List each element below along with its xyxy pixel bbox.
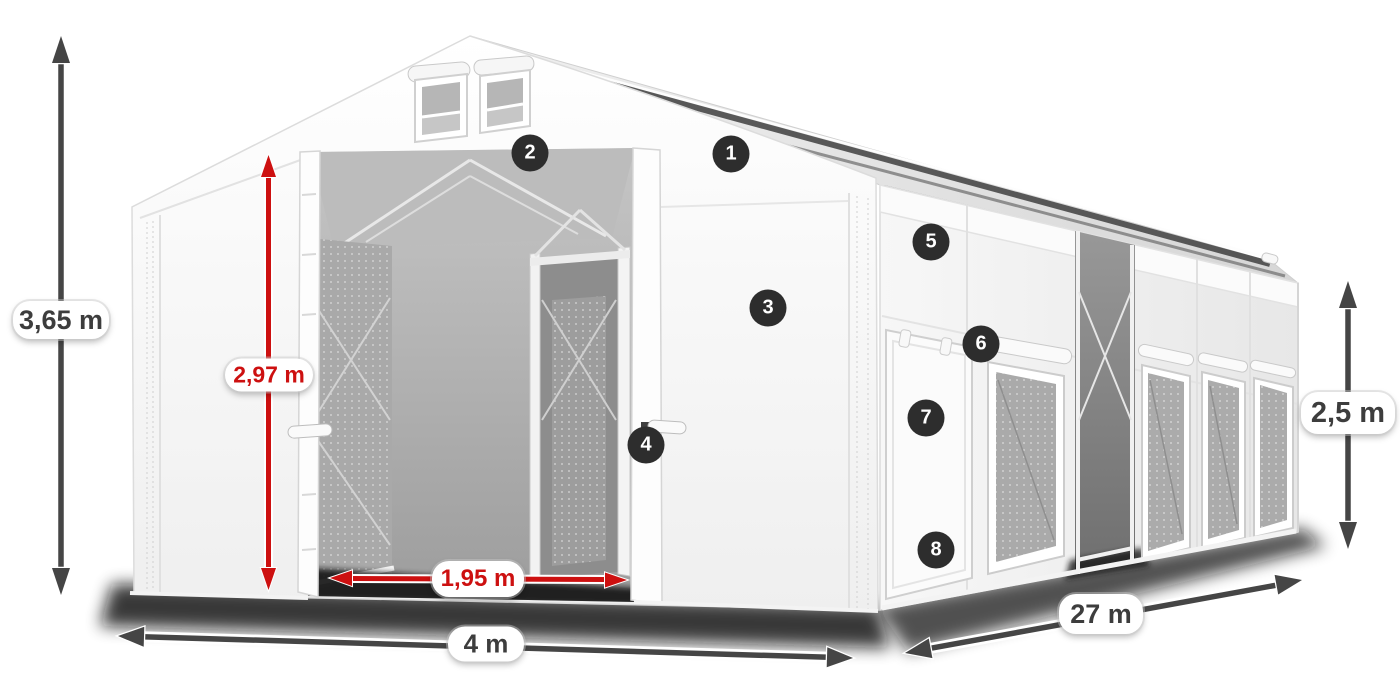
dimension-label-total-height: 3,65 m xyxy=(13,301,109,339)
side-window-4 xyxy=(1249,359,1296,537)
side-window-2 xyxy=(1137,343,1194,560)
door-handle-left xyxy=(288,423,333,438)
entrance-right-column xyxy=(631,148,662,604)
dimension-label-width: 4 m xyxy=(448,627,524,662)
product-dimension-diagram: 3,65 m 2,97 m 1,95 m 4 m 27 m 2,5 m 1 2 … xyxy=(0,0,1400,700)
tent-illustration xyxy=(0,0,1400,700)
callout-7[interactable]: 7 xyxy=(908,400,945,437)
callout-4[interactable]: 4 xyxy=(628,427,665,464)
entrance-opening xyxy=(300,140,645,610)
dimension-label-side-height: 2,5 m xyxy=(1301,392,1395,434)
interior-middle-frame xyxy=(530,210,630,580)
callout-3[interactable]: 3 xyxy=(750,290,787,327)
vent-window-left xyxy=(407,61,470,142)
callout-8[interactable]: 8 xyxy=(918,532,955,569)
interior-mesh-wall xyxy=(310,238,394,590)
dimension-label-entrance-width: 1,95 m xyxy=(432,561,524,597)
callout-5[interactable]: 5 xyxy=(913,224,950,261)
side-window-3 xyxy=(1197,352,1248,548)
dimension-label-entrance-height: 2,97 m xyxy=(225,359,313,392)
dimension-label-length: 27 m xyxy=(1059,594,1143,634)
callout-2[interactable]: 2 xyxy=(512,135,549,172)
callout-1[interactable]: 1 xyxy=(713,136,750,173)
callout-6[interactable]: 6 xyxy=(963,326,1000,363)
vent-window-right xyxy=(473,55,534,133)
